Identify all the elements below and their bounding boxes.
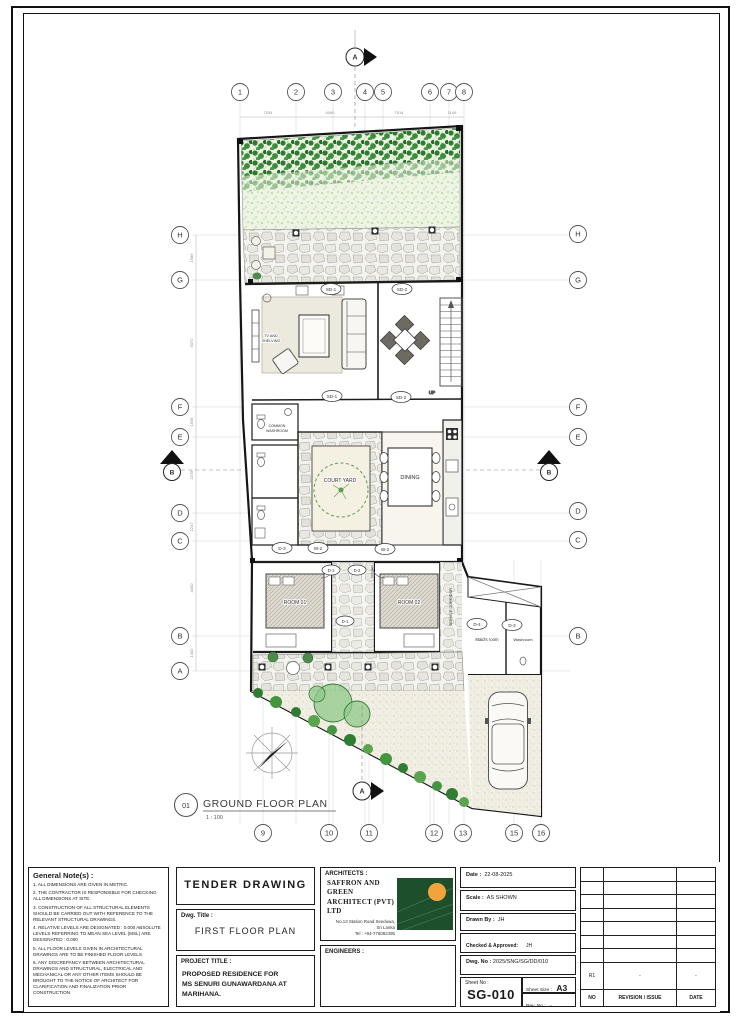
tag-d2: D-2 bbox=[354, 568, 361, 573]
grid-label: A bbox=[177, 667, 182, 676]
sheet-no-label: Sheet No : bbox=[461, 978, 521, 986]
sheet-size-value: A3 bbox=[556, 983, 567, 993]
general-note: 4. RELATIVE LEVELS ARE DESIGNATED : 0.00… bbox=[33, 925, 165, 943]
scale-value: AS SHOWN bbox=[487, 895, 517, 901]
dim-label: 4090 bbox=[326, 110, 336, 115]
grid-label: 7 bbox=[447, 88, 451, 97]
grid-label: 9 bbox=[261, 829, 265, 838]
tag-w2: W-2 bbox=[314, 546, 323, 551]
grid-label: H bbox=[575, 230, 580, 239]
dim-label: 2278 bbox=[189, 470, 194, 480]
revision-row bbox=[581, 922, 715, 936]
dining-label: DINING bbox=[400, 475, 419, 481]
section-b-right-label: B bbox=[547, 470, 552, 477]
tag-d3: D-3 bbox=[278, 546, 286, 551]
engineers-box: ENGINEERS : bbox=[320, 945, 456, 1007]
tender-drawing-box: TENDER DRAWING bbox=[176, 867, 315, 905]
up-label: UP bbox=[429, 390, 435, 395]
tag-sd1: SD-1 bbox=[327, 394, 338, 399]
general-notes-box: General Note(s) : 1. ALL DIMENSIONS ARE … bbox=[28, 867, 169, 1007]
grid-label: 3 bbox=[331, 88, 335, 97]
maids-room-label: Maid's room bbox=[475, 637, 499, 642]
rev-no-box: Rev. No : - bbox=[522, 993, 576, 1007]
grid-label: D bbox=[575, 507, 581, 516]
grid-label: 13 bbox=[459, 829, 467, 838]
tag-sd2: SD-2 bbox=[396, 395, 407, 400]
dim-label: 5072 bbox=[189, 338, 194, 348]
project-title-line: MS SENURI GUNAWARDANA AT bbox=[182, 980, 314, 990]
grid-label: 1 bbox=[238, 88, 242, 97]
plan-number: 01 bbox=[182, 803, 190, 810]
revision-row bbox=[581, 895, 715, 909]
common-washroom-label: COMMON bbox=[269, 424, 286, 428]
grid-label: E bbox=[575, 433, 580, 442]
dim-label: 7034 bbox=[264, 110, 274, 115]
room1-label: ROOM 01 bbox=[284, 600, 307, 606]
dwg-title-box: Dwg. Title : FIRST FLOOR PLAN bbox=[176, 909, 315, 951]
dim-label: 4400 bbox=[189, 583, 194, 593]
washroom-label: Washroom bbox=[513, 637, 533, 642]
grid-label: B bbox=[575, 632, 580, 641]
checked-box: Checked & Approved:JH bbox=[460, 933, 576, 953]
tag-d1: D-1 bbox=[328, 568, 335, 573]
tv-shelving-label: TV AND bbox=[264, 334, 278, 338]
revision-row bbox=[581, 868, 715, 882]
sheet-size-box: Sheet Size : A3 bbox=[522, 977, 576, 993]
dim-label: 1247 bbox=[189, 522, 194, 532]
room2-label: ROOM 02 bbox=[398, 600, 421, 606]
dwg-no-box: Dwg. No : 2025/SNG/SG/DD/010 bbox=[460, 955, 576, 975]
date-box: Date : 22-08-2025 bbox=[460, 867, 576, 888]
section-b-left-label: B bbox=[170, 470, 175, 477]
grid-label: 11 bbox=[365, 829, 373, 838]
project-title-label: PROJECT TITLE : bbox=[181, 959, 314, 965]
tag-d3: D-3 bbox=[508, 623, 516, 628]
engineers-label: ENGINEERS : bbox=[325, 949, 455, 955]
dim-label: 1149 bbox=[448, 110, 457, 115]
general-note: 3. CONSTRUCTION OF ALL STRUCTURAL ELEMEN… bbox=[33, 905, 165, 923]
architect-logo bbox=[397, 878, 453, 930]
grid-label: C bbox=[575, 536, 581, 545]
grid-label: G bbox=[177, 276, 183, 285]
grid-label: E bbox=[177, 433, 182, 442]
section-a-bottom-label: A bbox=[359, 789, 364, 796]
dwg-title-value: FIRST FLOOR PLAN bbox=[177, 926, 314, 936]
section-a-top-label: A bbox=[352, 55, 357, 62]
architect-tel: Tel : +94-776082495 bbox=[321, 931, 395, 937]
revision-row bbox=[581, 936, 715, 950]
architect-name-line: SAFFRON AND GREEN bbox=[327, 879, 397, 898]
grid-label: 16 bbox=[537, 829, 545, 838]
general-note: 2. THE CONTRACTOR IS RESPONSIBLE FOR CHE… bbox=[33, 890, 165, 902]
grid-label: 4 bbox=[363, 88, 367, 97]
grid-label: 12 bbox=[430, 829, 438, 838]
revision-row bbox=[581, 949, 715, 963]
general-note: 6. ANY DISCREPANCY BETWEEN ARCHITECTURAL… bbox=[33, 960, 165, 996]
rear-terrace bbox=[243, 227, 460, 285]
dwg-no-label: Dwg. No : bbox=[466, 959, 491, 965]
grid-label: 2 bbox=[294, 88, 298, 97]
grid-label: C bbox=[177, 537, 183, 546]
date-value: 22-08-2025 bbox=[484, 872, 512, 878]
revision-r1-no: R1 bbox=[581, 963, 604, 989]
grid-label: 8 bbox=[462, 88, 466, 97]
drawn-by-label: Drawn By : bbox=[466, 917, 495, 923]
revision-date-header: DATE bbox=[677, 990, 715, 1006]
tag-w2: W-2 bbox=[381, 547, 390, 552]
grid-label: B bbox=[177, 632, 182, 641]
dining-room: DINING bbox=[380, 432, 443, 545]
project-title-line: MARIHANA. bbox=[182, 990, 314, 1000]
service-corridor-label: SERVICE CORRIDOR bbox=[449, 588, 453, 627]
rev-no-value: - bbox=[550, 1003, 552, 1007]
car bbox=[485, 692, 531, 789]
dim-label: 7014 bbox=[395, 110, 405, 115]
rear-garden bbox=[237, 125, 462, 230]
revision-table: R1 - - NO REVISION / ISSUE DATE bbox=[580, 867, 716, 1007]
tag-sd1: SD-1 bbox=[326, 287, 337, 292]
date-label: Date : bbox=[466, 872, 481, 878]
grid-label: G bbox=[575, 276, 581, 285]
grid-label: 6 bbox=[428, 88, 432, 97]
living-room: TV AND SHELVING bbox=[252, 286, 366, 374]
architects-box: ARCHITECTS : SAFFRON AND GREEN ARCHITECT… bbox=[320, 867, 456, 941]
revision-no-header: NO bbox=[581, 990, 604, 1006]
tv-shelving-label: SHELVING bbox=[262, 339, 281, 343]
project-title-line: PROPOSED RESIDENCE FOR bbox=[182, 970, 314, 980]
title-block: General Note(s) : 1. ALL DIMENSIONS ARE … bbox=[24, 862, 720, 1012]
bedrooms: ROOM 01 ROOM 02 SERVICE CORRIDOR bbox=[266, 562, 462, 652]
dim-label: 1402 bbox=[189, 648, 194, 658]
tag-d1: D-1 bbox=[342, 619, 349, 624]
courtyard: COURT YARD bbox=[298, 432, 382, 545]
revision-issue-header: REVISION / ISSUE bbox=[604, 990, 677, 1006]
plan-scale: 1 : 100 bbox=[206, 815, 223, 821]
dim-label: 1558 bbox=[189, 417, 194, 427]
tag-sd2: SD-2 bbox=[397, 287, 408, 292]
north-compass-icon bbox=[246, 727, 298, 779]
general-note: 1. ALL DIMENSIONS ARE GIVEN IN METRIC. bbox=[33, 882, 165, 888]
sheet-no-value: SG-010 bbox=[461, 987, 521, 1002]
drawn-by-box: Drawn By : JH bbox=[460, 913, 576, 931]
grid-label: D bbox=[177, 509, 183, 518]
revision-r1-date: - bbox=[677, 963, 715, 989]
checked-label: Checked & Approved: bbox=[466, 943, 518, 949]
grid-label: 5 bbox=[381, 88, 385, 97]
drawn-by-value: JH bbox=[498, 917, 505, 923]
courtyard-label: COURT YARD bbox=[324, 478, 357, 484]
grid-label: F bbox=[576, 403, 581, 412]
scale-label: Scale : bbox=[466, 895, 484, 901]
rev-no-label: Rev. No : bbox=[523, 1004, 546, 1007]
revision-row-r1: R1 - - bbox=[581, 963, 715, 990]
checked-value: JH bbox=[526, 943, 532, 949]
general-note: 5. ALL FLOOR LEVELS GIVEN IN ARCHITECTUR… bbox=[33, 946, 165, 958]
verandah bbox=[253, 652, 464, 691]
revision-r1-desc: - bbox=[604, 963, 677, 989]
grid-label: F bbox=[178, 403, 183, 412]
plan-title: GROUND FLOOR PLAN bbox=[203, 798, 328, 810]
dwg-title-label: Dwg. Title : bbox=[181, 913, 314, 919]
grid-label: 15 bbox=[510, 829, 518, 838]
grid-label: 10 bbox=[325, 829, 333, 838]
tag-d4: D-4 bbox=[473, 622, 481, 627]
dwg-no-value: 2025/SNG/SG/DD/010 bbox=[493, 959, 548, 965]
project-title-box: PROJECT TITLE : PROPOSED RESIDENCE FOR M… bbox=[176, 955, 315, 1007]
revision-row bbox=[581, 882, 715, 896]
floor-plan-drawing: 7034 4090 7014 1149 1986 5072 1558 2278 … bbox=[0, 0, 746, 860]
revision-header-row: NO REVISION / ISSUE DATE bbox=[581, 990, 715, 1006]
revision-row bbox=[581, 909, 715, 923]
sheet-no-box: Sheet No : SG-010 bbox=[460, 977, 522, 1007]
drawing-sheet: 7034 4090 7014 1149 1986 5072 1558 2278 … bbox=[0, 0, 746, 1024]
scale-box: Scale : AS SHOWN bbox=[460, 890, 576, 911]
common-washroom-label: WASHROOM bbox=[266, 429, 288, 433]
tender-drawing-label: TENDER DRAWING bbox=[177, 879, 314, 891]
dim-label: 1986 bbox=[189, 253, 194, 263]
plan-title-callout: 01 GROUND FLOOR PLAN 1 : 100 bbox=[175, 794, 337, 822]
general-notes-title: General Note(s) : bbox=[33, 871, 168, 880]
architect-name-line: ARCHITECT (PVT) LTD bbox=[327, 898, 397, 917]
grid-label: H bbox=[177, 231, 182, 240]
